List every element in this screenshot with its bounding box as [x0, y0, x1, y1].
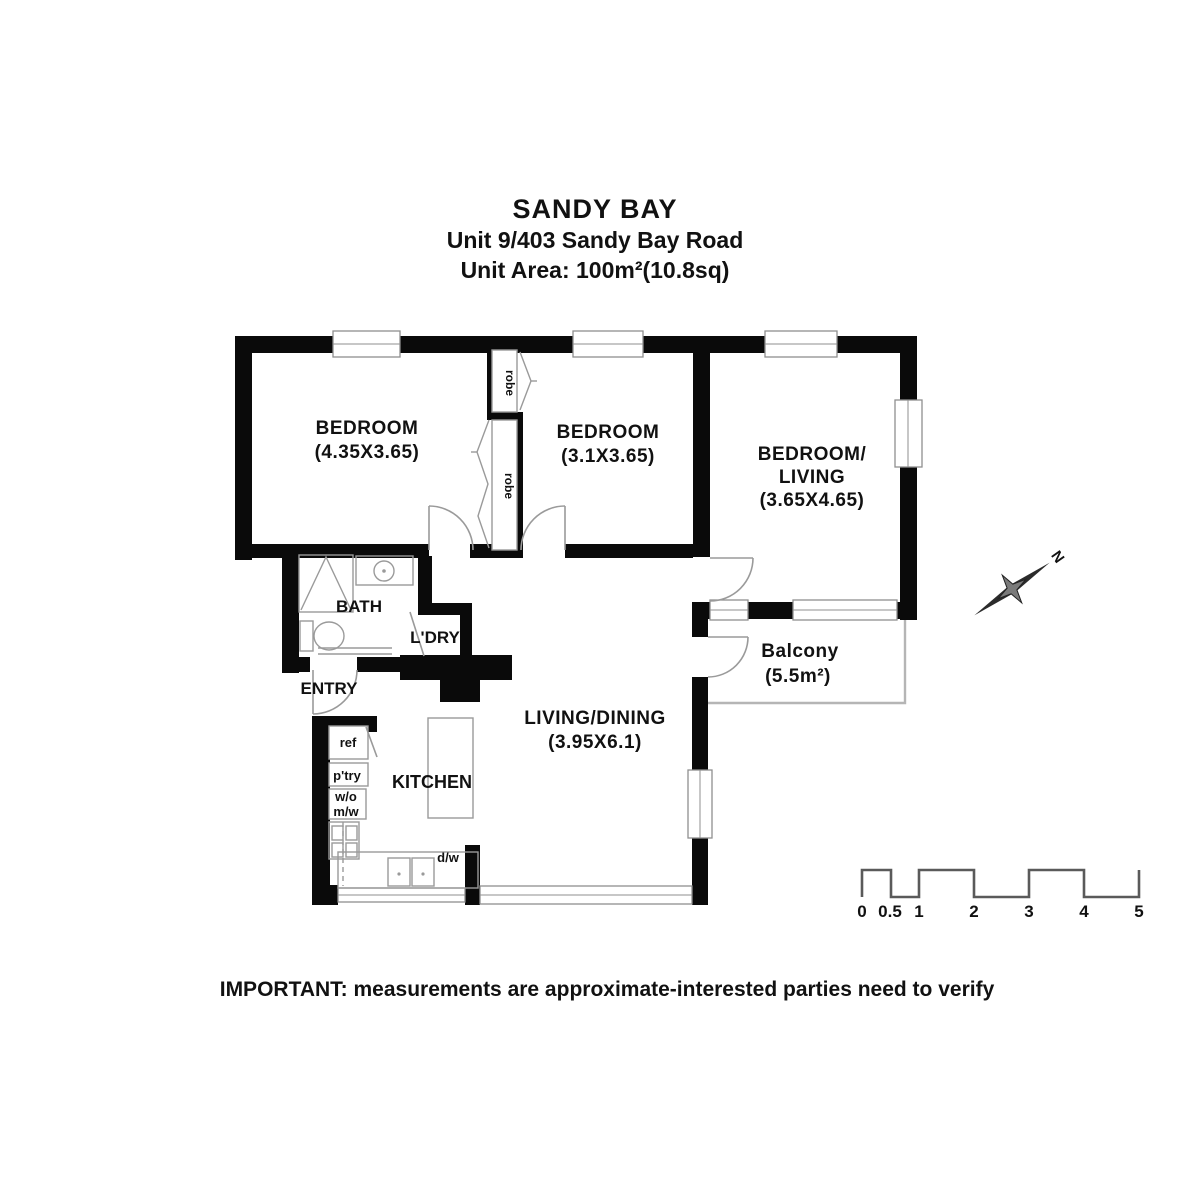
- kitchen-sink-bowl: [388, 858, 410, 886]
- scale-bar: 0 0.5 1 2 3 4 5: [857, 870, 1143, 921]
- robe-bottom-label: robe: [502, 473, 516, 499]
- scale-tick-label: 4: [1079, 902, 1089, 921]
- entry-label: ENTRY: [301, 679, 359, 698]
- cooktop-burner-icon: [346, 826, 357, 840]
- scale-tick-label: 1: [914, 902, 923, 921]
- north-arrow: N: [965, 538, 1075, 629]
- living-dining-dims: (3.95X6.1): [548, 732, 642, 753]
- scale-bar-line: [862, 870, 1139, 897]
- bedroom-living-label-2: LIVING: [779, 467, 845, 488]
- scale-tick-label: 0.5: [878, 902, 902, 921]
- bedroom1-dims: (4.35X3.65): [315, 442, 420, 463]
- scale-tick-label: 0: [857, 902, 866, 921]
- window: [710, 600, 748, 620]
- living-dining-label: LIVING/DINING: [524, 708, 666, 729]
- title-block: SANDY BAY Unit 9/403 Sandy Bay Road Unit…: [447, 194, 744, 283]
- bedroom2-label: BEDROOM: [557, 422, 660, 443]
- kitchen-sink-bowl: [412, 858, 434, 886]
- sink-drain-icon: [397, 872, 400, 875]
- sink-drain-icon: [421, 872, 424, 875]
- compass-star-icon: [988, 565, 1035, 612]
- wall-segment: [440, 655, 480, 702]
- bedroom-living-label-1: BEDROOM/: [758, 444, 867, 465]
- wall-oven-label: w/o: [334, 789, 357, 804]
- window: [793, 600, 897, 620]
- sink-tap-icon: [382, 569, 386, 573]
- wall-segment: [565, 544, 693, 558]
- robe-top-label: robe: [503, 370, 517, 396]
- scale-tick-label: 2: [969, 902, 978, 921]
- wall-segment: [357, 657, 400, 672]
- toilet-bowl-icon: [314, 622, 344, 650]
- toilet-cistern: [300, 621, 313, 651]
- page-subtitle-area: Unit Area: 100m²(10.8sq): [461, 257, 730, 283]
- window: [333, 331, 400, 357]
- laundry-label: L'DRY: [410, 628, 460, 647]
- cooktop-burner-icon: [346, 843, 357, 857]
- robe-bifold-door: [520, 352, 531, 410]
- wall-segment: [693, 336, 710, 557]
- kitchen-label: KITCHEN: [392, 772, 472, 792]
- window: [573, 331, 643, 357]
- microwave-label: m/w: [333, 804, 359, 819]
- bedroom-living-dims: (3.65X4.65): [760, 490, 865, 511]
- cooktop-burner-icon: [332, 826, 343, 840]
- floorplan-canvas: SANDY BAY Unit 9/403 Sandy Bay Road Unit…: [0, 0, 1200, 1200]
- bedroom1-label: BEDROOM: [316, 418, 419, 439]
- door-bedroom2: [521, 506, 565, 550]
- windows: [333, 331, 922, 904]
- balcony-label: Balcony: [761, 641, 838, 662]
- robe-bifold-door: [477, 420, 489, 548]
- door-bedroom1: [429, 506, 473, 550]
- wall-segment: [235, 336, 252, 560]
- wall-segment: [282, 553, 299, 673]
- robe-wall-segment: [487, 412, 523, 420]
- door-bath-slider: [318, 648, 392, 654]
- fridge-label: ref: [340, 735, 357, 750]
- door-opening: [691, 637, 709, 677]
- window: [765, 331, 837, 357]
- wall-segment: [312, 885, 338, 905]
- disclaimer-text: IMPORTANT: measurements are approximate-…: [220, 978, 995, 1001]
- kitchen-island: [428, 718, 473, 818]
- floorplan-page: SANDY BAY Unit 9/403 Sandy Bay Road Unit…: [0, 0, 1200, 1200]
- pantry-label: p'try: [333, 768, 361, 783]
- window: [338, 888, 465, 902]
- wall-segment: [282, 657, 310, 672]
- bath-label: BATH: [336, 597, 382, 616]
- window: [895, 400, 922, 467]
- door-balcony: [708, 637, 748, 677]
- window: [688, 770, 712, 838]
- scale-tick-label: 3: [1024, 902, 1033, 921]
- page-title: SANDY BAY: [512, 194, 677, 224]
- dishwasher-label: d/w: [437, 850, 460, 865]
- wall-segment: [900, 336, 917, 620]
- page-subtitle-address: Unit 9/403 Sandy Bay Road: [447, 227, 744, 253]
- compass-north-label: N: [1047, 548, 1067, 567]
- robe-wall-segment: [517, 420, 523, 544]
- balcony-dims: (5.5m²): [765, 666, 831, 687]
- bedroom2-dims: (3.1X3.65): [561, 446, 655, 467]
- window: [480, 886, 692, 904]
- door-bedroom-living: [710, 558, 753, 601]
- wall-segment: [312, 716, 330, 905]
- scale-tick-label: 5: [1134, 902, 1143, 921]
